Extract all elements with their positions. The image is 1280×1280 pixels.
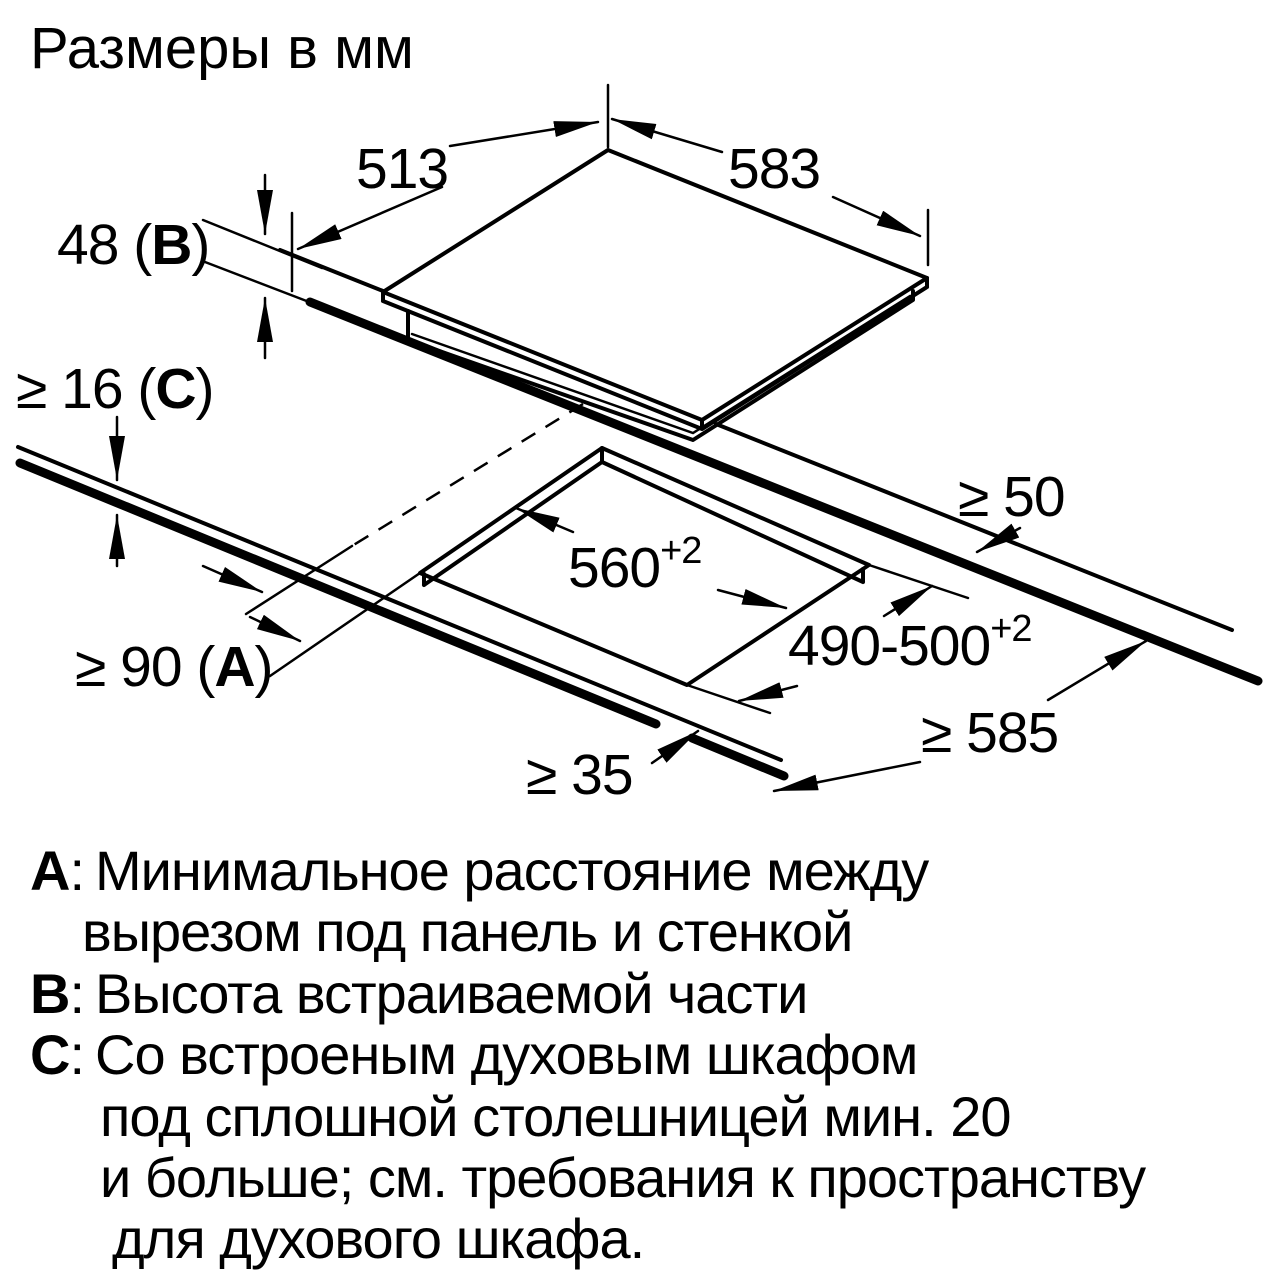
legend-line-c1: С: Со встроеным духовым шкафом bbox=[30, 1023, 917, 1086]
dim-worktop-thickness-label: ≥ 16 (C) bbox=[16, 357, 214, 421]
legend-line-c3: и больше; см. требования к пространству bbox=[100, 1146, 1146, 1209]
legend-line-b1: В: Высота встраиваемой части bbox=[30, 962, 807, 1025]
legend-line-c4: для духового шкафа. bbox=[112, 1207, 644, 1270]
legend-line-a2: вырезом под панель и стенкой bbox=[82, 900, 852, 963]
dim-front-clearance-label: ≥ 35 bbox=[526, 743, 633, 807]
dim-side-clearance-label: ≥ 50 bbox=[958, 465, 1065, 529]
dim-worktop-depth-label: ≥ 585 bbox=[921, 701, 1058, 765]
installation-diagram: Размеры в мм bbox=[0, 0, 1280, 1280]
legend-line-c2: под сплошной столешницей мин. 20 bbox=[100, 1085, 1011, 1148]
dim-glass-width-label: 583 bbox=[728, 137, 820, 201]
dim-build-in-height-label: 48 (B) bbox=[57, 213, 209, 277]
page: { "title": "Размеры в мм", "colors": { "… bbox=[0, 0, 1280, 1280]
legend-line-a1: А: Минимальное расстояние между bbox=[30, 839, 929, 902]
dim-glass-depth-label: 513 bbox=[356, 137, 448, 201]
dim-rear-distance-label: ≥ 90 (A) bbox=[75, 635, 273, 699]
diagram-title: Размеры в мм bbox=[30, 16, 414, 81]
